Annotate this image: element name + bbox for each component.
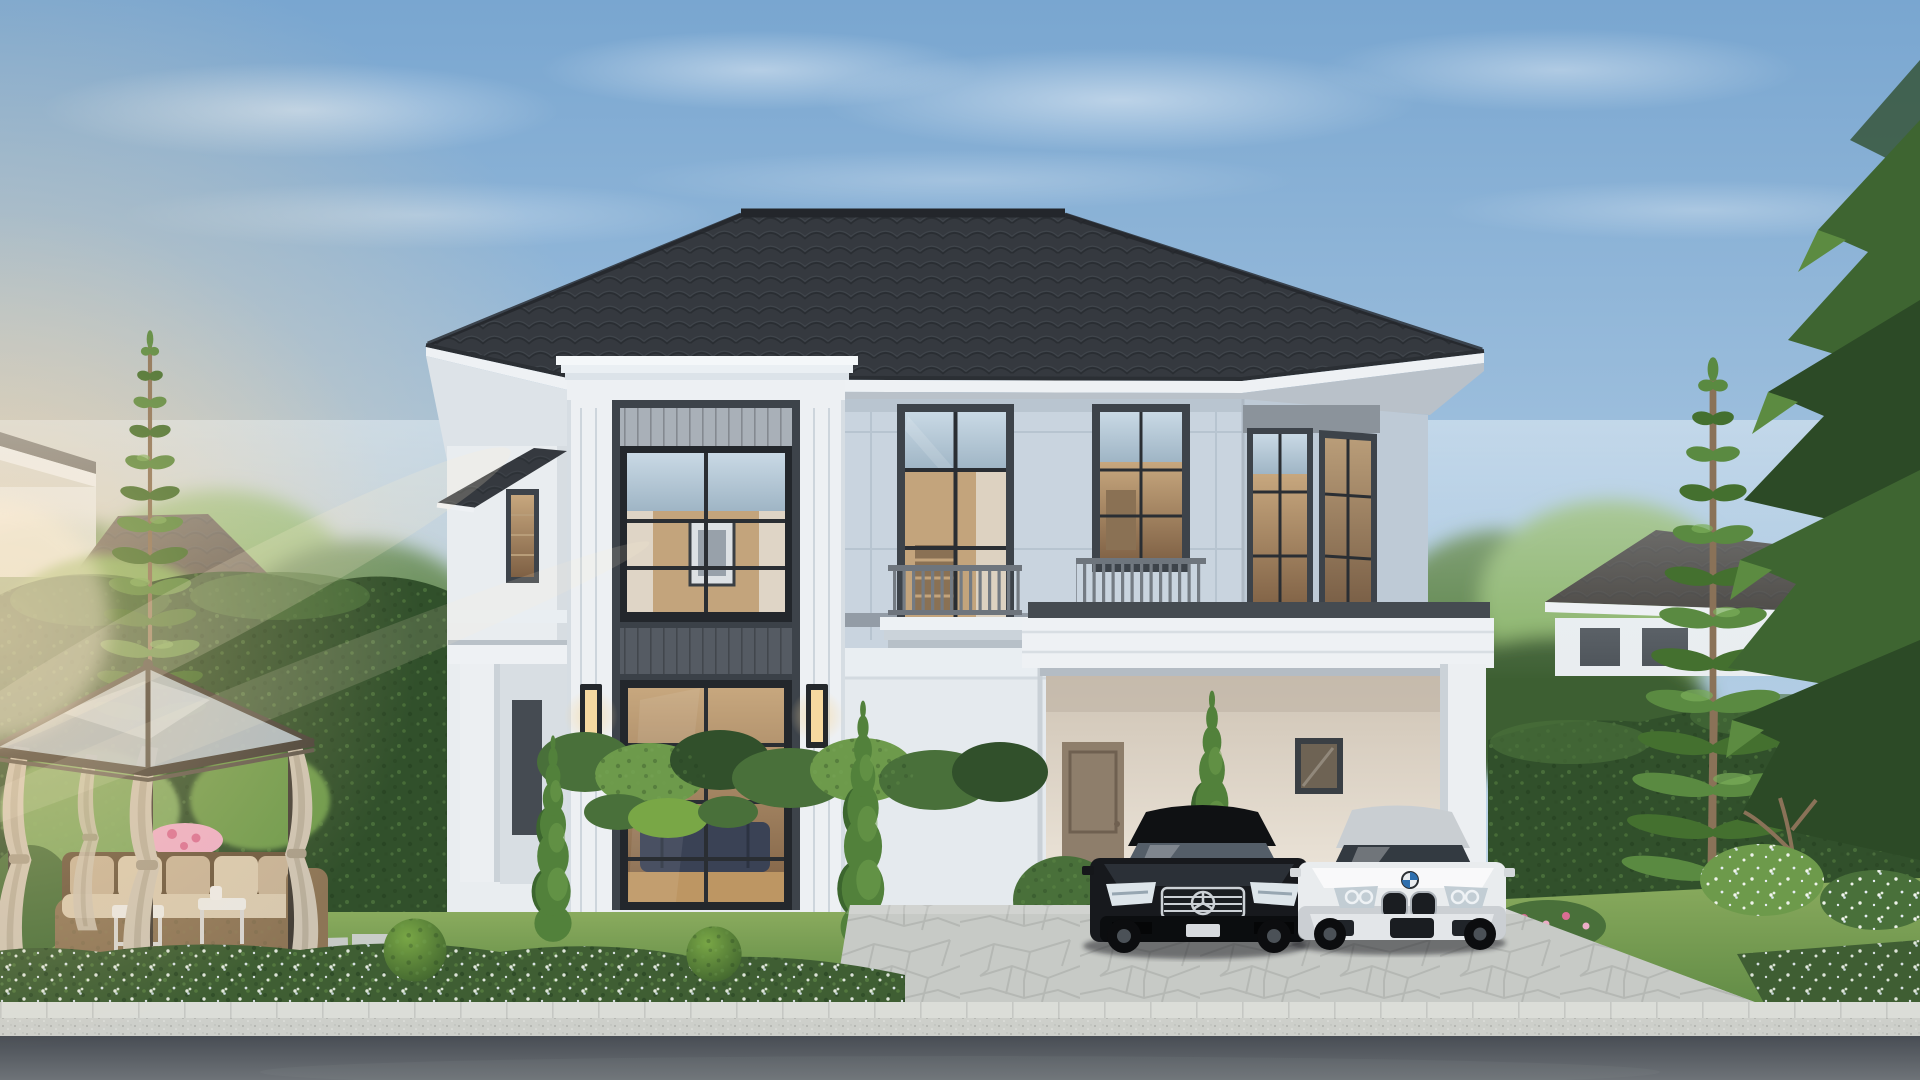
hedge-highlight: [1490, 720, 1650, 764]
shrub: [952, 742, 1048, 802]
license-plate: [1186, 924, 1220, 937]
porch-mound: [698, 796, 758, 828]
side-mirror: [1504, 868, 1515, 877]
pink-bloom: [1562, 912, 1570, 920]
wheel-rim: [1474, 928, 1487, 941]
batten-lines: [620, 622, 792, 680]
tall-window-juliet: [880, 404, 1030, 648]
paver-joints: [0, 1002, 1920, 1018]
sedan-roof: [1128, 805, 1276, 846]
portal-pilaster-left: [567, 400, 612, 930]
cloud: [1320, 28, 1800, 112]
juliet-slab-cove: [884, 630, 1026, 640]
carport-roof-trim: [1028, 602, 1490, 618]
carport-fascia: [1022, 618, 1494, 668]
portal-cornice: [556, 356, 858, 365]
aggregate-texture: [0, 1018, 1920, 1036]
batten-rail: [620, 622, 792, 628]
interior-shelf: [1106, 490, 1136, 550]
interior-curtain: [627, 511, 653, 615]
topiary-ball: [686, 926, 741, 981]
juliet-slab: [880, 617, 1030, 630]
wheel-rim: [1117, 929, 1131, 943]
corner-windows: [1243, 405, 1380, 626]
topiary-ball: [384, 919, 447, 982]
wheel-rim: [1267, 929, 1281, 943]
header-batten-lines: [620, 408, 792, 446]
rendering-stage: [0, 0, 1920, 1080]
portal-frieze: [567, 380, 845, 400]
sconce-lens: [811, 690, 823, 742]
carport-soffit-shadow: [1040, 668, 1478, 676]
balcony-top-rail: [1076, 558, 1206, 564]
door-knob: [1114, 821, 1120, 827]
side-mirror: [1290, 868, 1301, 877]
coupe-roof: [1336, 805, 1470, 848]
balcony-balusters: [1076, 564, 1206, 604]
portal-cornice: [565, 373, 849, 380]
juliet-slab-under: [888, 640, 1022, 648]
juliet-bottom-rail: [888, 610, 1022, 615]
bumper-intake: [1390, 918, 1434, 938]
juliet-top-rail: [888, 565, 1022, 571]
side-mirror: [1082, 866, 1094, 875]
house-exterior-scene: [0, 0, 1920, 1080]
cloud: [620, 150, 1300, 210]
portal-pilaster-right: [800, 400, 845, 930]
wing-slab-edge: [448, 640, 578, 645]
road: [0, 1036, 1920, 1080]
kerb-sidewalk: [0, 1002, 1920, 1036]
batten-rail: [620, 674, 792, 680]
bmw-roundel-icon: [1402, 872, 1418, 888]
entry-portal: [544, 356, 870, 950]
porch-mound: [628, 798, 708, 838]
wheel-rim: [1324, 928, 1337, 941]
white-blooms: [1700, 844, 1824, 916]
wing-door: [512, 700, 542, 835]
carport-ceiling-shadow: [1046, 676, 1440, 712]
sash-bar: [620, 612, 792, 622]
portal-cornice: [561, 365, 853, 373]
pink-bloom: [1583, 923, 1590, 930]
juliet-balusters: [888, 571, 1022, 612]
wing-column-shade: [494, 664, 500, 882]
interior-curtain: [759, 511, 785, 615]
